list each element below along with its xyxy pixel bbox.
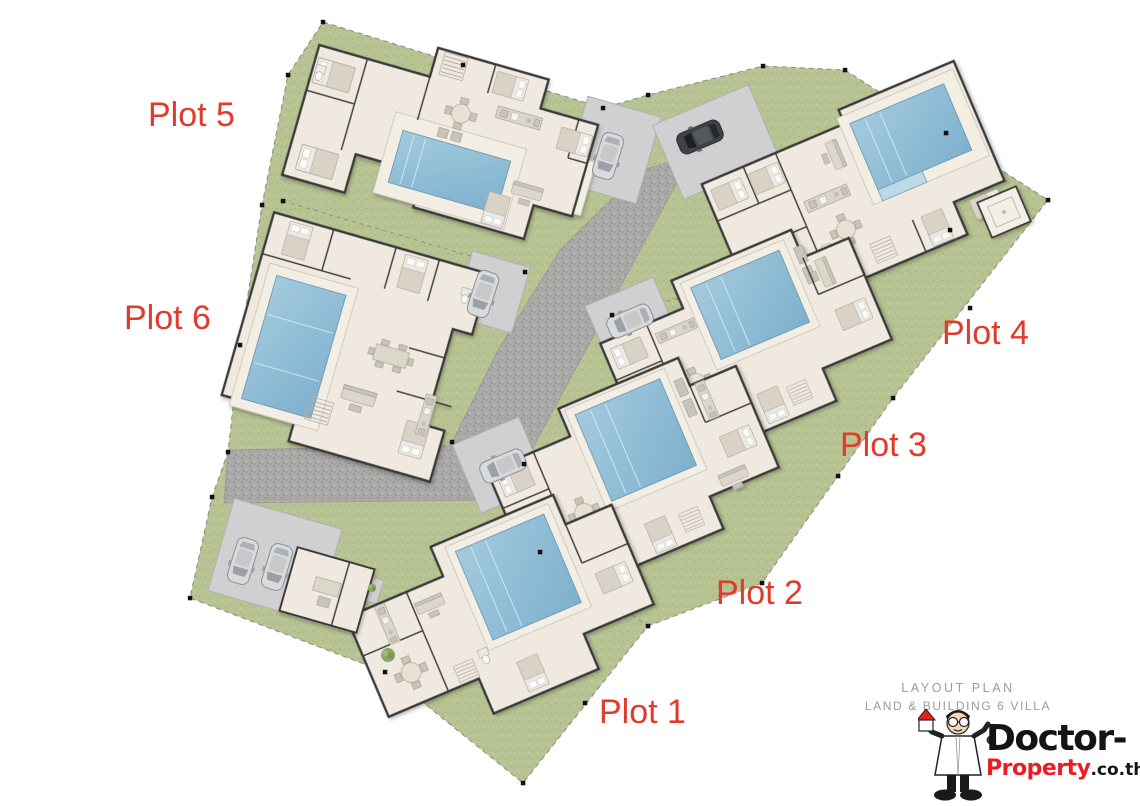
brand-suffix: .co.th — [1090, 760, 1140, 780]
plan-title: LAYOUT PLAN — [853, 679, 1063, 697]
layout-plan-page: Plot 1 Plot 2 Plot 3 Plot 4 Plot 5 Plot … — [0, 0, 1140, 806]
brand-name-black: Doctor- — [986, 720, 1140, 758]
plot-label-3: Plot 3 — [840, 427, 927, 463]
brand-logo: Doctor- Property.co.th — [986, 720, 1140, 781]
plot-label-1: Plot 1 — [599, 694, 686, 730]
plot-label-5: Plot 5 — [148, 97, 235, 133]
plot-label-4: Plot 4 — [942, 315, 1029, 351]
shrub-icon — [368, 584, 376, 592]
plot-label-6: Plot 6 — [124, 300, 211, 336]
shrub-icon — [381, 648, 395, 662]
plot-label-2: Plot 2 — [716, 575, 803, 611]
brand-name-red: Property — [986, 756, 1090, 781]
